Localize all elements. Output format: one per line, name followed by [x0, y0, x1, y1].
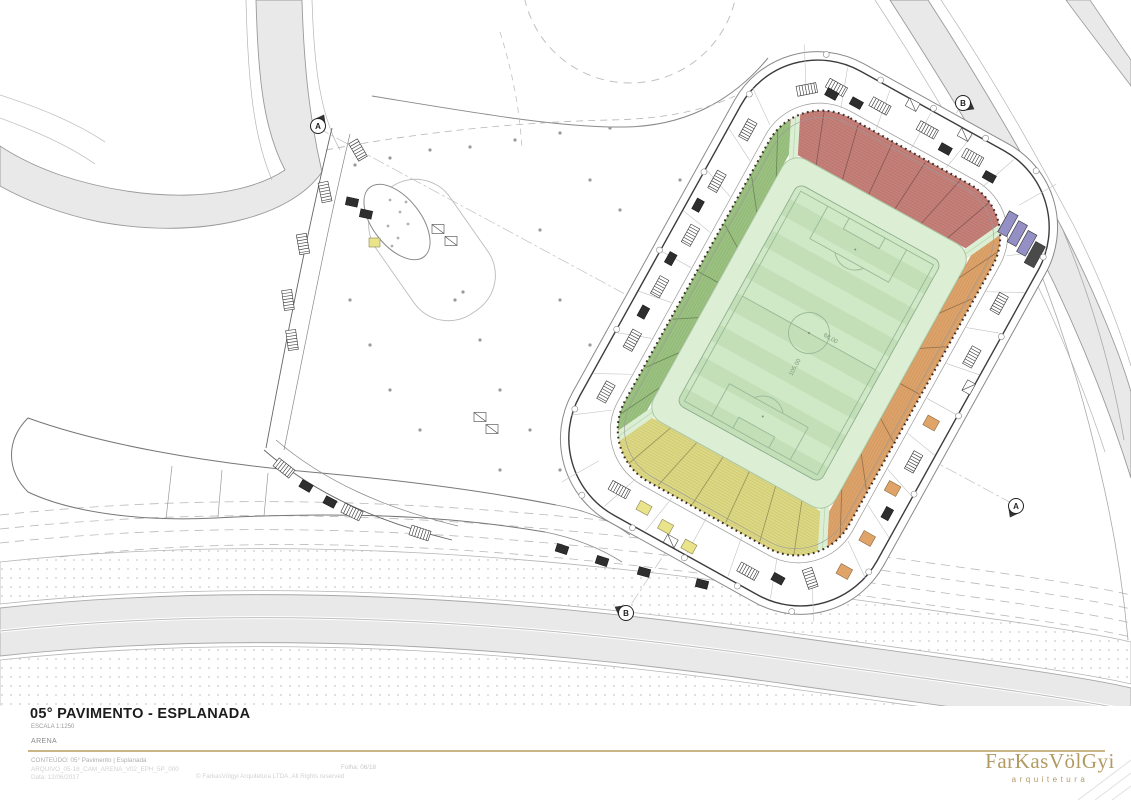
roundabout-outline [522, 0, 738, 83]
loop-lane-ticks [166, 466, 268, 519]
service-loop-road [12, 418, 557, 532]
stadium: 68,00 105,00 [526, 18, 1091, 649]
site-plan-drawing: 68,00 105,00 [0, 0, 1131, 800]
section-marker-a2: A [1005, 499, 1024, 521]
northwest-road [0, 0, 340, 228]
access-curve [372, 58, 768, 127]
svg-text:B: B [960, 99, 966, 108]
planter-pond [351, 163, 512, 337]
section-marker-a1: A [311, 112, 330, 134]
kiosk-yellow-esplanade [369, 238, 380, 247]
page-corner-hatch [1078, 760, 1131, 800]
plaza-boundary-dashed [326, 96, 735, 150]
corner-road-edge [1066, 0, 1131, 86]
svg-text:A: A [1013, 502, 1019, 511]
drawing-sheet: 68,00 105,00 [0, 0, 1131, 800]
svg-text:A: A [315, 122, 321, 131]
svg-text:B: B [623, 609, 629, 618]
